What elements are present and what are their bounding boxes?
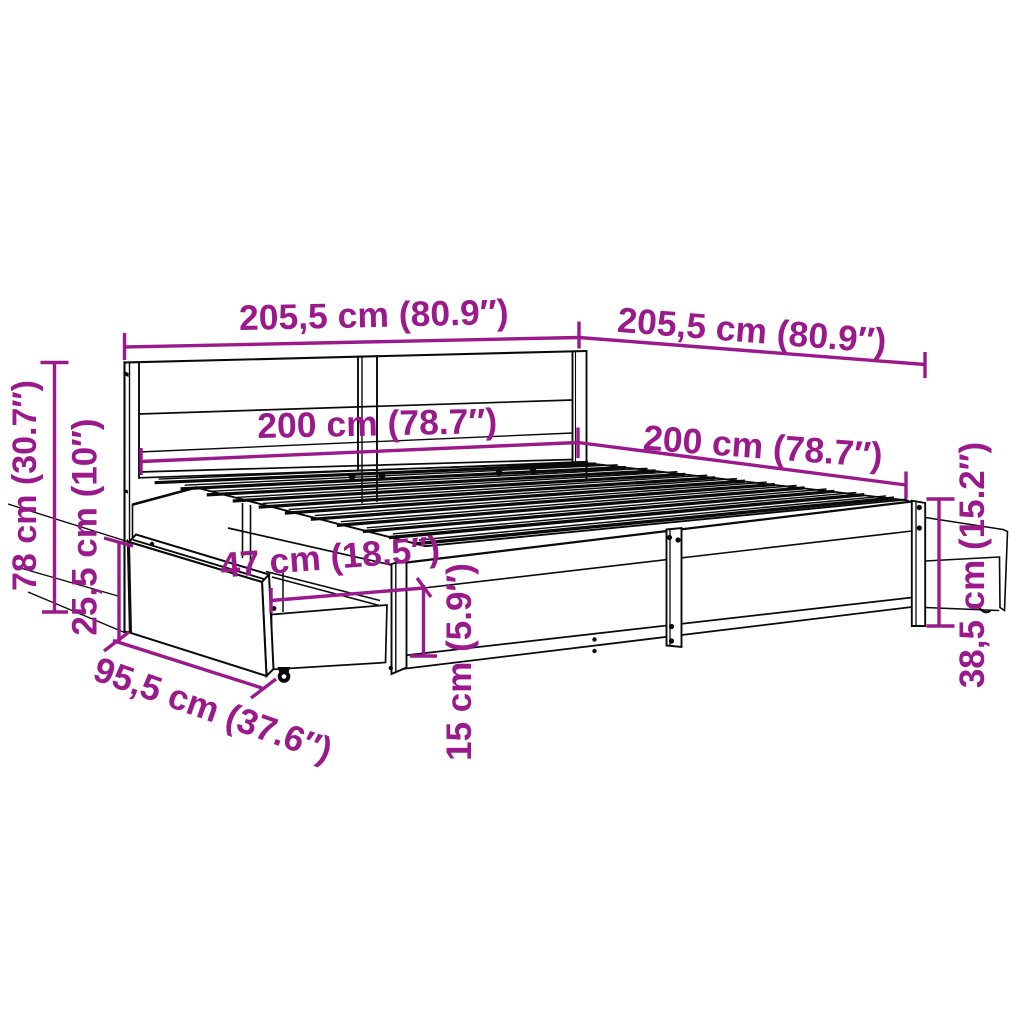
svg-text:25,5 cm (10″): 25,5 cm (10″) <box>66 418 105 635</box>
svg-text:205,5 cm (80.9″): 205,5 cm (80.9″) <box>238 292 508 338</box>
svg-text:200 cm (78.7″): 200 cm (78.7″) <box>257 401 498 446</box>
svg-text:78 cm (30.7″): 78 cm (30.7″) <box>6 380 44 591</box>
svg-text:15 cm (5.9″): 15 cm (5.9″) <box>440 563 479 761</box>
svg-text:38,5 cm (15.2″): 38,5 cm (15.2″) <box>953 442 992 688</box>
